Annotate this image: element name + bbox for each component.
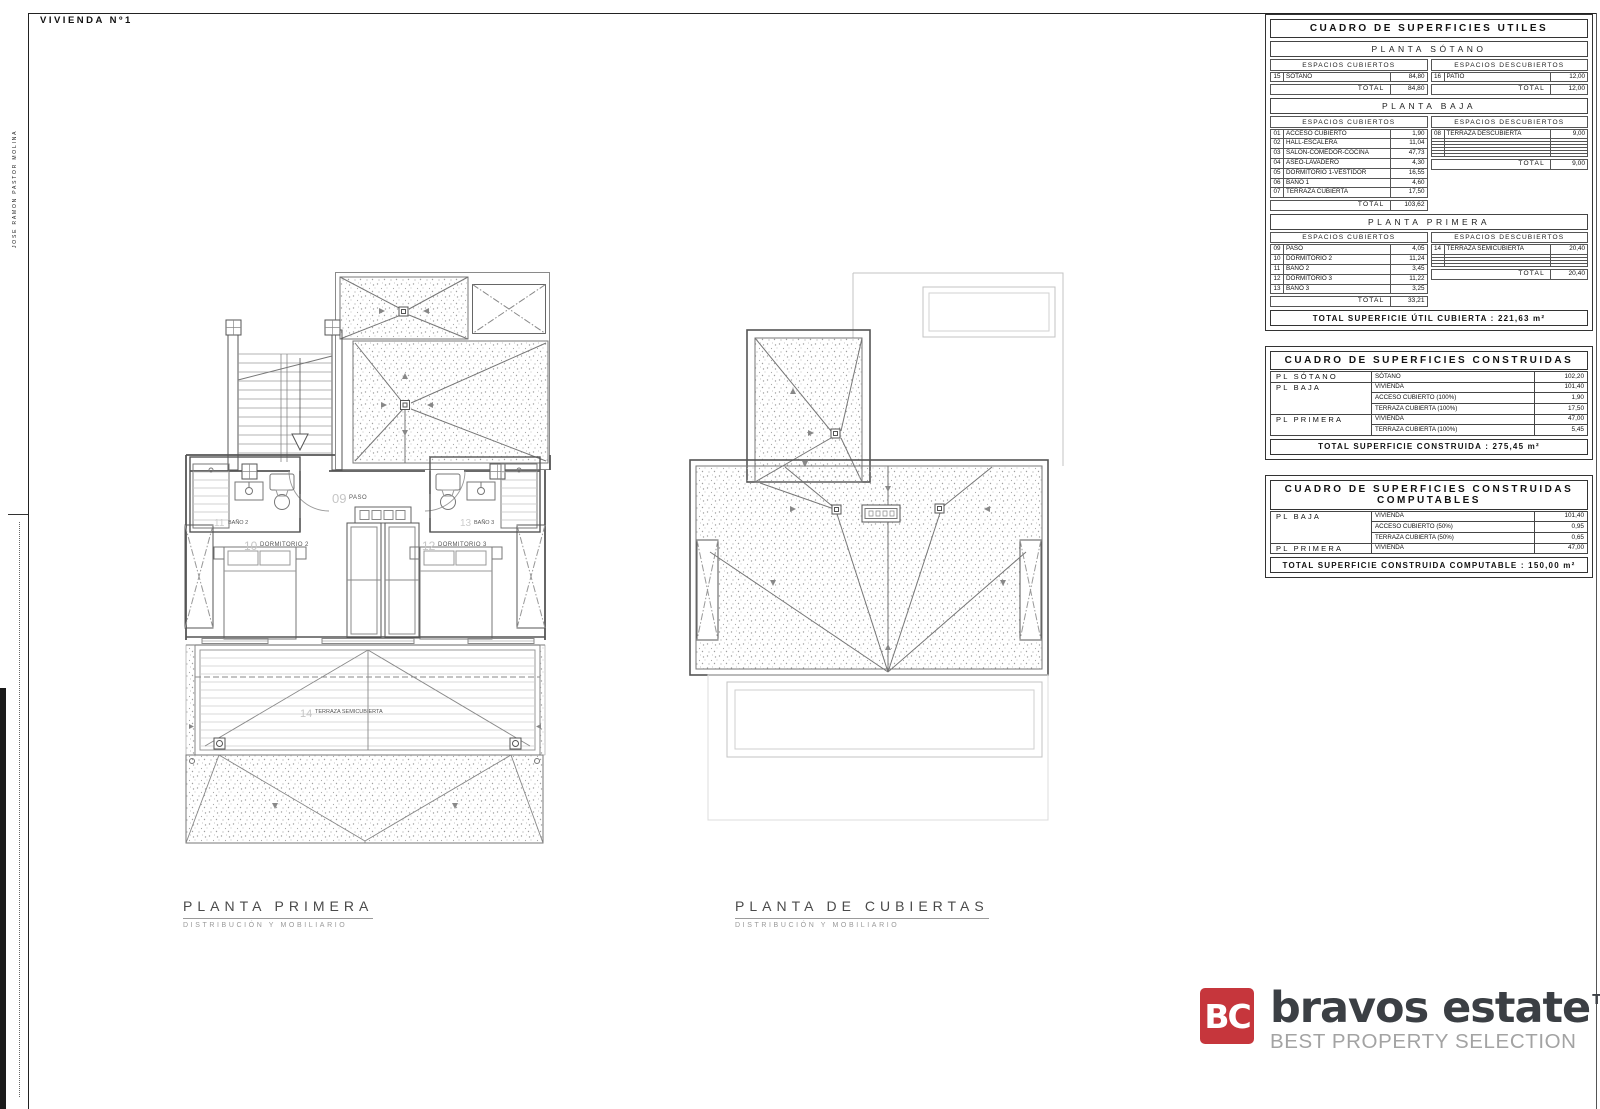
terrace-semicubierta (195, 645, 540, 755)
total-row: TOTAL 84,80 (1270, 84, 1428, 95)
row-number (1431, 153, 1445, 157)
room-label-dorm3: DORMITORIO 3 (438, 542, 487, 548)
total-value: 20,40 (1550, 269, 1588, 280)
surface-row (1431, 263, 1589, 267)
wardrobes (185, 525, 545, 628)
plan-planta-primera: 09 PASO 10 DORMITORIO 2 12 DORMITORIO 3 … (172, 258, 570, 848)
surface-tables: CUADRO DE SUPERFICIES UTILES PLANTA SÓTA… (1265, 14, 1593, 578)
row-label: VIVIENDA (1371, 543, 1535, 555)
architect-name-vertical: JOSÉ RAMÓN PASTOR MOLINA (12, 16, 18, 248)
logo-name: bravos estateTM (1270, 988, 1600, 1029)
section-planta-sotano: PLANTA SÓTANO (1270, 41, 1588, 57)
row-group (1270, 424, 1372, 436)
sheet-border-right (1596, 13, 1597, 1109)
center-closet (347, 507, 419, 638)
row-number: 13 (1270, 284, 1284, 295)
row-value: 5,45 (1534, 424, 1588, 436)
room-label-bano3: BAÑO 3 (474, 519, 494, 526)
row-value: 47,00 (1534, 543, 1588, 555)
plan-subtitle-primera: DISTRIBUCIÓN Y MOBILIARIO (183, 922, 347, 929)
total-row: TOTAL 33,21 (1270, 296, 1428, 307)
column-header-cubiertos: ESPACIOS CUBIERTOS (1270, 59, 1428, 71)
logo-tagline: BEST PROPERTY SELECTION (1270, 1030, 1600, 1054)
sheet-edge-bar (0, 688, 6, 1109)
column-header-descubiertos: ESPACIOS DESCUBIERTOS (1431, 232, 1589, 244)
surface-row: 13 BAÑO 3 3,25 (1270, 284, 1428, 295)
surface-row: 15 SÓTANO 84,80 (1270, 72, 1428, 83)
table-superficies-utiles: CUADRO DE SUPERFICIES UTILES PLANTA SÓTA… (1265, 14, 1593, 331)
logo-text: bravos estateTM BEST PROPERTY SELECTION (1270, 988, 1600, 1054)
row-label (1444, 263, 1552, 267)
table-title-line2: COMPUTABLES (1271, 495, 1587, 506)
row-number: 15 (1270, 72, 1284, 83)
total-label: TOTAL (1270, 200, 1391, 211)
room-number-bano3: 13 (460, 518, 472, 529)
row-value: 17,50 (1390, 187, 1428, 198)
bed-dormitorio-2 (214, 547, 306, 639)
total-label: TOTAL (1431, 84, 1552, 95)
built-surface-row: PL PRIMERA VIVIENDA 47,00 (1270, 543, 1588, 555)
surface-row: 16 PATIO 12,00 (1431, 72, 1589, 83)
row-value (1550, 153, 1588, 157)
plan-title-primera: PLANTA PRIMERA (183, 898, 373, 919)
room-label-dorm2: DORMITORIO 2 (260, 542, 309, 548)
table-title: CUADRO DE SUPERFICIES CONSTRUIDAS COMPUT… (1270, 480, 1588, 510)
table-footer-computable-total: TOTAL SUPERFICIE CONSTRUIDA COMPUTABLE :… (1270, 557, 1588, 573)
room-label-bano2: BAÑO 2 (228, 519, 248, 526)
room-number-dorm2: 10 (244, 539, 258, 553)
row-number: 16 (1431, 72, 1445, 83)
row-group: PL PRIMERA (1270, 543, 1372, 555)
column-header-descubiertos: ESPACIOS DESCUBIERTOS (1431, 59, 1589, 71)
plan-subtitle-cubiertas: DISTRIBUCIÓN Y MOBILIARIO (735, 922, 899, 929)
room-number-dorm3: 12 (422, 539, 436, 553)
sheet-border-left (28, 13, 29, 1109)
room-number-terraza: 14 (300, 708, 312, 720)
row-label: SÓTANO (1283, 72, 1391, 83)
row-value: 12,00 (1550, 72, 1588, 83)
total-label: TOTAL (1431, 269, 1552, 280)
row-label: TERRAZA CUBIERTA (1283, 187, 1391, 198)
bravos-estate-logo: BC bravos estateTM BEST PROPERTY SELECTI… (1200, 988, 1600, 1054)
sheet-title: VIVIENDA Nº1 (40, 15, 133, 26)
row-label: PATIO (1444, 72, 1552, 83)
table-footer-util-total: TOTAL SUPERFICIE ÚTIL CUBIERTA : 221,63 … (1270, 310, 1588, 326)
row-value: 84,80 (1390, 72, 1428, 83)
total-value: 12,00 (1550, 84, 1588, 95)
table-title: CUADRO DE SUPERFICIES CONSTRUIDAS (1270, 351, 1588, 370)
row-number: 07 (1270, 187, 1284, 198)
upper-roof (336, 273, 550, 470)
total-row: TOTAL 9,00 (1431, 159, 1589, 170)
total-row: TOTAL 103,62 (1270, 200, 1428, 211)
plan-planta-cubiertas (670, 258, 1070, 833)
footprint-below-outline (853, 273, 1063, 466)
total-value: 33,21 (1390, 296, 1428, 307)
room-number-bano2: 11 (214, 518, 225, 529)
row-number (1431, 263, 1445, 267)
margin-tick (8, 514, 28, 515)
row-label (1444, 153, 1552, 157)
drawing-sheet: JOSÉ RAMÓN PASTOR MOLINA VIVIENDA Nº1 (0, 0, 1600, 1109)
surface-row (1431, 153, 1589, 157)
plan-title-cubiertas: PLANTA DE CUBIERTAS (735, 898, 989, 919)
section-planta-baja: PLANTA BAJA (1270, 98, 1588, 114)
table-superficies-computables: CUADRO DE SUPERFICIES CONSTRUIDAS COMPUT… (1265, 475, 1593, 578)
total-value: 84,80 (1390, 84, 1428, 95)
logo-tm-mark: TM (1592, 993, 1600, 1008)
total-label: TOTAL (1431, 159, 1552, 170)
total-label: TOTAL (1270, 84, 1391, 95)
total-row: TOTAL 20,40 (1431, 269, 1589, 280)
table-title-line1: CUADRO DE SUPERFICIES CONSTRUIDAS (1271, 484, 1587, 495)
row-label: TERRAZA CUBIERTA (100%) (1371, 424, 1535, 436)
terrace-wall-windows (186, 637, 545, 645)
column-header-cubiertos: ESPACIOS CUBIERTOS (1270, 232, 1428, 244)
logo-badge-letters: BC (1204, 997, 1249, 1036)
logo-badge: BC (1200, 988, 1254, 1044)
terrace-below-outline (708, 675, 1048, 820)
staircase (226, 320, 342, 470)
section-planta-primera: PLANTA PRIMERA (1270, 214, 1588, 230)
table-title: CUADRO DE SUPERFICIES UTILES (1270, 19, 1588, 38)
surface-row: 07 TERRAZA CUBIERTA 17,50 (1270, 187, 1428, 198)
room-number-paso: 09 (332, 491, 346, 506)
total-label: TOTAL (1270, 296, 1391, 307)
room-labels: 09 PASO 10 DORMITORIO 2 12 DORMITORIO 3 … (214, 491, 494, 720)
table-superficies-construidas: CUADRO DE SUPERFICIES CONSTRUIDAS PL SÓT… (1265, 346, 1593, 460)
total-row: TOTAL 12,00 (1431, 84, 1589, 95)
disclaimer-text-strip (19, 522, 20, 1097)
column-header-cubiertos: ESPACIOS CUBIERTOS (1270, 116, 1428, 128)
built-surface-row: TERRAZA CUBIERTA (100%) 5,45 (1270, 424, 1588, 436)
lower-roof (186, 645, 545, 843)
total-value: 103,62 (1390, 200, 1428, 211)
row-value: 3,25 (1390, 284, 1428, 295)
bed-dormitorio-3 (410, 547, 502, 639)
room-label-paso: PASO (349, 495, 367, 501)
column-header-descubiertos: ESPACIOS DESCUBIERTOS (1431, 116, 1589, 128)
logo-name-text: bravos estate (1270, 983, 1590, 1033)
row-label: BAÑO 3 (1283, 284, 1391, 295)
row-value (1550, 263, 1588, 267)
room-label-terraza: TERRAZA SEMICUBIERTA (315, 709, 383, 715)
total-value: 9,00 (1550, 159, 1588, 170)
table-footer-construida-total: TOTAL SUPERFICIE CONSTRUIDA : 275,45 m² (1270, 439, 1588, 455)
main-roof (690, 460, 1048, 675)
